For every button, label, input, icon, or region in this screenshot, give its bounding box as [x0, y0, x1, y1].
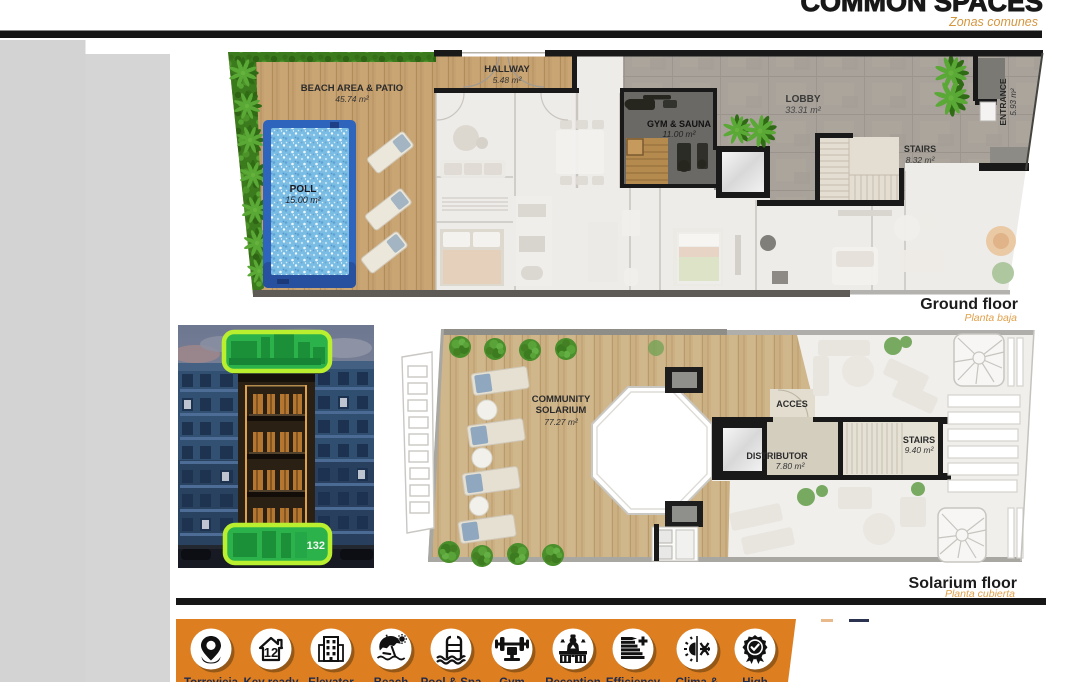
svg-text:ENTRANCE: ENTRANCE — [998, 78, 1008, 126]
svg-text:High: High — [742, 677, 768, 682]
svg-text:BEACH AREA & PATIO: BEACH AREA & PATIO — [301, 83, 403, 94]
svg-text:Torrevieja: Torrevieja — [184, 677, 239, 682]
svg-text:Planta baja: Planta baja — [964, 312, 1017, 324]
svg-text:STAIRS: STAIRS — [904, 144, 936, 154]
svg-text:POLL: POLL — [290, 184, 317, 195]
svg-text:Zonas comunes: Zonas comunes — [948, 15, 1038, 29]
svg-text:Beach: Beach — [374, 677, 409, 682]
svg-text:Key ready: Key ready — [244, 677, 300, 682]
svg-text:Reception: Reception — [545, 677, 601, 682]
svg-text:11.00 m²: 11.00 m² — [663, 129, 697, 139]
svg-text:7.80 m²: 7.80 m² — [776, 461, 806, 471]
svg-text:5.48 m²: 5.48 m² — [493, 75, 523, 85]
svg-text:77.27 m²: 77.27 m² — [544, 417, 579, 427]
svg-text:45.74 m²: 45.74 m² — [335, 94, 370, 104]
svg-text:LOBBY: LOBBY — [786, 94, 821, 105]
svg-text:SOLARIUM: SOLARIUM — [536, 405, 587, 416]
svg-text:8.32 m²: 8.32 m² — [906, 155, 936, 165]
svg-text:STAIRS: STAIRS — [903, 435, 935, 445]
svg-text:ACCES: ACCES — [776, 399, 808, 409]
svg-text:Elevator: Elevator — [308, 677, 354, 682]
svg-text:9.40 m²: 9.40 m² — [905, 445, 935, 455]
svg-text:COMMUNITY: COMMUNITY — [532, 394, 591, 405]
svg-text:12: 12 — [264, 645, 278, 660]
svg-text:Efficiency: Efficiency — [606, 677, 661, 682]
svg-text:DISTRIBUTOR: DISTRIBUTOR — [746, 451, 808, 461]
svg-text:HALLWAY: HALLWAY — [484, 64, 530, 75]
svg-text:Clima &: Clima & — [676, 677, 719, 682]
svg-text:33.31 m²: 33.31 m² — [785, 105, 822, 115]
svg-text:132: 132 — [307, 540, 325, 552]
svg-text:Pool & Spa: Pool & Spa — [421, 677, 482, 682]
svg-text:GYM & SAUNA: GYM & SAUNA — [647, 119, 712, 129]
svg-text:5.93 m²: 5.93 m² — [1009, 88, 1018, 115]
svg-text:Gym: Gym — [499, 677, 525, 682]
svg-text:15.00 m²: 15.00 m² — [285, 195, 322, 205]
svg-text:Ground floor: Ground floor — [920, 296, 1018, 313]
